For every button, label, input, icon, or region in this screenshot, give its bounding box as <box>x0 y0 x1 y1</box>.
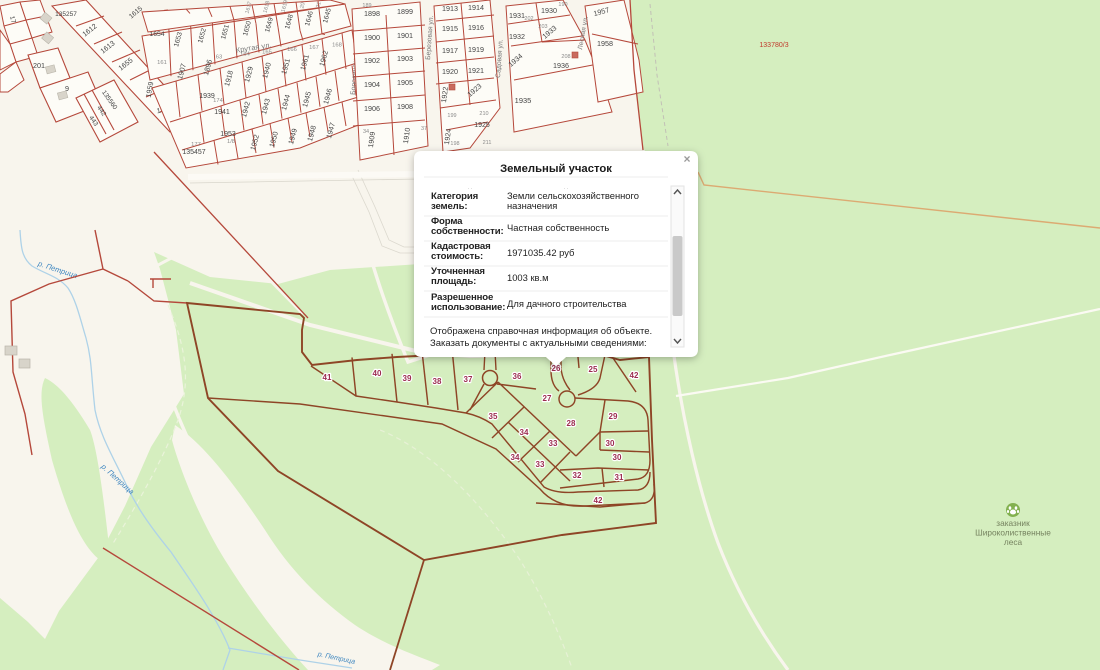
svg-text:135457: 135457 <box>182 149 205 156</box>
svg-text:1925: 1925 <box>474 122 490 129</box>
svg-text:38: 38 <box>433 377 442 386</box>
svg-text:1936: 1936 <box>553 61 569 70</box>
svg-text:Отображена справочная информац: Отображена справочная информация об объе… <box>430 326 652 337</box>
svg-text:201: 201 <box>33 61 45 70</box>
svg-text:177: 177 <box>191 142 201 148</box>
svg-text:133780/3: 133780/3 <box>759 42 788 49</box>
svg-text:стоимость:: стоимость: <box>431 251 483 262</box>
svg-text:37: 37 <box>421 126 427 132</box>
svg-text:190: 190 <box>558 2 567 8</box>
svg-text:1920: 1920 <box>442 67 458 76</box>
svg-text:165: 165 <box>262 50 272 56</box>
svg-text:1941: 1941 <box>214 109 230 116</box>
svg-text:1905: 1905 <box>397 78 413 87</box>
svg-text:1971035.42 руб: 1971035.42 руб <box>507 247 574 258</box>
svg-text:30: 30 <box>606 439 615 448</box>
svg-text:168: 168 <box>332 43 342 49</box>
svg-text:34: 34 <box>520 428 529 437</box>
svg-text:1916: 1916 <box>468 23 484 32</box>
svg-text:28: 28 <box>567 419 576 428</box>
svg-text:1003 кв.м: 1003 кв.м <box>507 272 549 283</box>
svg-text:31: 31 <box>615 473 624 482</box>
svg-text:1935: 1935 <box>515 96 532 105</box>
svg-text:29: 29 <box>609 412 618 421</box>
svg-text:1/8: 1/8 <box>227 139 235 145</box>
svg-text:1900: 1900 <box>364 33 380 42</box>
svg-text:33: 33 <box>536 460 545 469</box>
svg-text:25: 25 <box>589 365 598 374</box>
svg-text:Заказать документы с актуальны: Заказать документы с актуальными сведени… <box>430 338 647 349</box>
svg-text:площадь:: площадь: <box>431 276 476 287</box>
svg-text:135257: 135257 <box>55 11 77 18</box>
svg-text:Земельный участок: Земельный участок <box>500 163 612 175</box>
svg-text:202: 202 <box>524 16 533 22</box>
svg-text:34: 34 <box>363 129 369 135</box>
svg-text:1915: 1915 <box>442 24 458 33</box>
svg-text:Частная собственность: Частная собственность <box>507 222 609 233</box>
svg-text:1899: 1899 <box>397 7 413 16</box>
svg-text:40: 40 <box>373 369 382 378</box>
svg-text:32: 32 <box>573 471 582 480</box>
svg-text:1906: 1906 <box>364 104 380 113</box>
svg-text:174: 174 <box>213 98 223 104</box>
svg-text:1908: 1908 <box>397 102 413 111</box>
svg-text:Для дачного строительства: Для дачного строительства <box>507 298 627 309</box>
svg-text:164: 164 <box>240 52 250 58</box>
svg-text:189: 189 <box>362 3 371 9</box>
svg-text:199: 199 <box>447 113 456 119</box>
svg-text:1654: 1654 <box>149 31 164 38</box>
svg-text:1898: 1898 <box>364 9 380 18</box>
svg-text:167: 167 <box>309 45 319 51</box>
svg-text:63: 63 <box>216 54 222 60</box>
svg-text:1913: 1913 <box>442 4 458 13</box>
svg-text:37: 37 <box>464 375 473 384</box>
svg-text:36: 36 <box>513 372 522 381</box>
svg-text:27: 27 <box>543 394 552 403</box>
svg-text:заказник: заказник <box>996 518 1030 528</box>
svg-text:198: 198 <box>450 141 459 147</box>
svg-text:1902: 1902 <box>364 56 380 65</box>
svg-text:Широколиственные: Широколиственные <box>975 528 1051 538</box>
svg-text:1914: 1914 <box>468 3 484 12</box>
svg-text:1921: 1921 <box>468 66 484 75</box>
svg-text:210: 210 <box>479 111 488 117</box>
svg-text:1931: 1931 <box>509 11 525 20</box>
svg-text:208: 208 <box>561 54 570 60</box>
svg-text:×: × <box>683 152 690 166</box>
svg-text:использование:: использование: <box>431 302 505 313</box>
svg-text:161: 161 <box>157 60 167 66</box>
svg-text:назначения: назначения <box>507 200 557 211</box>
svg-text:35: 35 <box>489 412 498 421</box>
svg-text:42: 42 <box>594 496 603 505</box>
svg-text:земель:: земель: <box>431 201 467 212</box>
svg-text:203: 203 <box>538 24 547 30</box>
svg-text:34: 34 <box>511 453 520 462</box>
svg-text:1919: 1919 <box>468 45 484 54</box>
svg-text:166: 166 <box>287 47 297 53</box>
svg-text:39: 39 <box>403 374 412 383</box>
svg-text:1904: 1904 <box>364 80 380 89</box>
svg-text:42: 42 <box>630 371 639 380</box>
svg-text:33: 33 <box>549 439 558 448</box>
svg-text:1958: 1958 <box>597 39 613 48</box>
svg-text:1901: 1901 <box>397 31 413 40</box>
svg-text:1953: 1953 <box>220 131 236 138</box>
svg-text:1930: 1930 <box>541 6 557 15</box>
svg-text:30: 30 <box>613 453 622 462</box>
svg-text:1917: 1917 <box>442 46 458 55</box>
svg-text:211: 211 <box>483 140 492 146</box>
svg-text:1932: 1932 <box>509 32 525 41</box>
svg-text:1903: 1903 <box>397 54 413 63</box>
svg-text:леса: леса <box>1004 537 1023 547</box>
svg-text:собственности:: собственности: <box>431 226 504 237</box>
svg-text:41: 41 <box>323 373 332 382</box>
